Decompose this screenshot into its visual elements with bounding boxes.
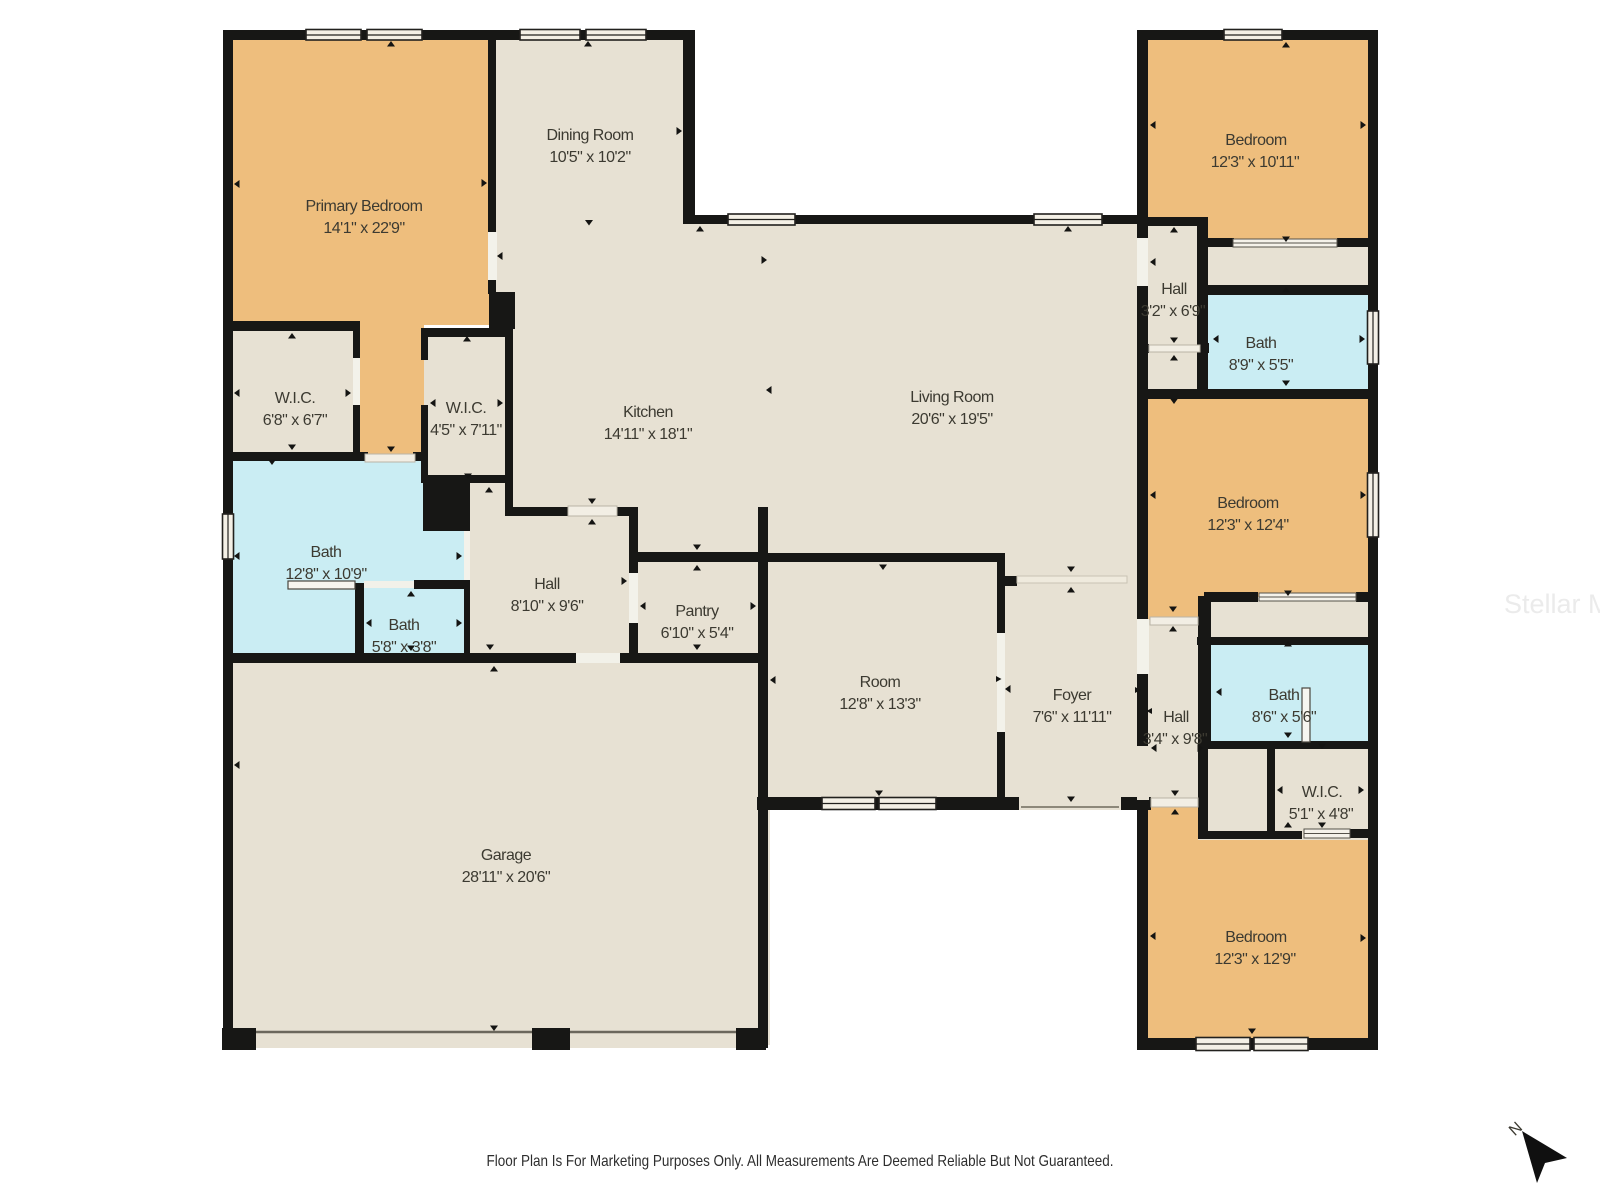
svg-text:14'11" x 18'1": 14'11" x 18'1" bbox=[604, 426, 692, 443]
svg-text:5'8" x 3'8": 5'8" x 3'8" bbox=[372, 639, 436, 656]
svg-text:Stellar MLS: Stellar MLS bbox=[1504, 589, 1600, 619]
svg-text:3'2" x 6'9": 3'2" x 6'9" bbox=[1141, 303, 1205, 320]
svg-text:W.I.C.: W.I.C. bbox=[446, 400, 487, 417]
svg-text:Bath: Bath bbox=[1269, 687, 1300, 704]
svg-text:12'3" x 12'4": 12'3" x 12'4" bbox=[1207, 517, 1288, 534]
svg-text:Kitchen: Kitchen bbox=[623, 404, 673, 421]
svg-text:12'3" x 10'11": 12'3" x 10'11" bbox=[1211, 154, 1299, 171]
svg-text:8'9" x 5'5": 8'9" x 5'5" bbox=[1229, 357, 1293, 374]
svg-text:12'3" x 12'9": 12'3" x 12'9" bbox=[1214, 951, 1295, 968]
svg-text:20'6" x 19'5": 20'6" x 19'5" bbox=[911, 411, 992, 428]
svg-text:Garage: Garage bbox=[481, 847, 532, 864]
svg-text:6'8" x 6'7": 6'8" x 6'7" bbox=[263, 412, 327, 429]
svg-text:Primary Bedroom: Primary Bedroom bbox=[306, 198, 423, 215]
svg-text:12'8" x 13'3": 12'8" x 13'3" bbox=[839, 696, 920, 713]
svg-text:8'10" x 9'6": 8'10" x 9'6" bbox=[511, 598, 584, 615]
svg-text:Room: Room bbox=[860, 674, 901, 691]
svg-text:14'1" x 22'9": 14'1" x 22'9" bbox=[323, 220, 404, 237]
svg-text:28'11" x 20'6": 28'11" x 20'6" bbox=[462, 869, 550, 886]
svg-text:W.I.C.: W.I.C. bbox=[275, 390, 316, 407]
svg-text:7'6" x 11'11": 7'6" x 11'11" bbox=[1033, 709, 1112, 726]
svg-text:5'1" x 4'8": 5'1" x 4'8" bbox=[1289, 806, 1353, 823]
svg-text:Bath: Bath bbox=[389, 617, 420, 634]
svg-text:3'4" x 9'8": 3'4" x 9'8" bbox=[1143, 731, 1207, 748]
svg-text:Bath: Bath bbox=[1246, 335, 1277, 352]
svg-text:8'6" x 5'6": 8'6" x 5'6" bbox=[1252, 709, 1316, 726]
svg-text:Hall: Hall bbox=[1163, 709, 1189, 726]
svg-text:W.I.C.: W.I.C. bbox=[1302, 784, 1343, 801]
svg-text:Living Room: Living Room bbox=[910, 389, 994, 406]
svg-text:Foyer: Foyer bbox=[1053, 687, 1093, 704]
svg-text:12'8" x 10'9": 12'8" x 10'9" bbox=[285, 566, 366, 583]
svg-text:10'5" x 10'2": 10'5" x 10'2" bbox=[549, 149, 630, 166]
svg-text:Bedroom: Bedroom bbox=[1225, 929, 1287, 946]
svg-text:Hall: Hall bbox=[1161, 281, 1187, 298]
svg-text:6'10" x 5'4": 6'10" x 5'4" bbox=[661, 625, 734, 642]
svg-text:Pantry: Pantry bbox=[675, 603, 719, 620]
svg-text:4'5" x 7'11": 4'5" x 7'11" bbox=[430, 422, 502, 439]
svg-text:Hall: Hall bbox=[534, 576, 560, 593]
svg-text:Dining Room: Dining Room bbox=[547, 127, 634, 144]
svg-text:Bedroom: Bedroom bbox=[1225, 132, 1287, 149]
svg-text:Floor Plan Is For Marketing Pu: Floor Plan Is For Marketing Purposes Onl… bbox=[487, 1153, 1114, 1170]
svg-text:Bedroom: Bedroom bbox=[1217, 495, 1279, 512]
svg-text:Bath: Bath bbox=[311, 544, 342, 561]
